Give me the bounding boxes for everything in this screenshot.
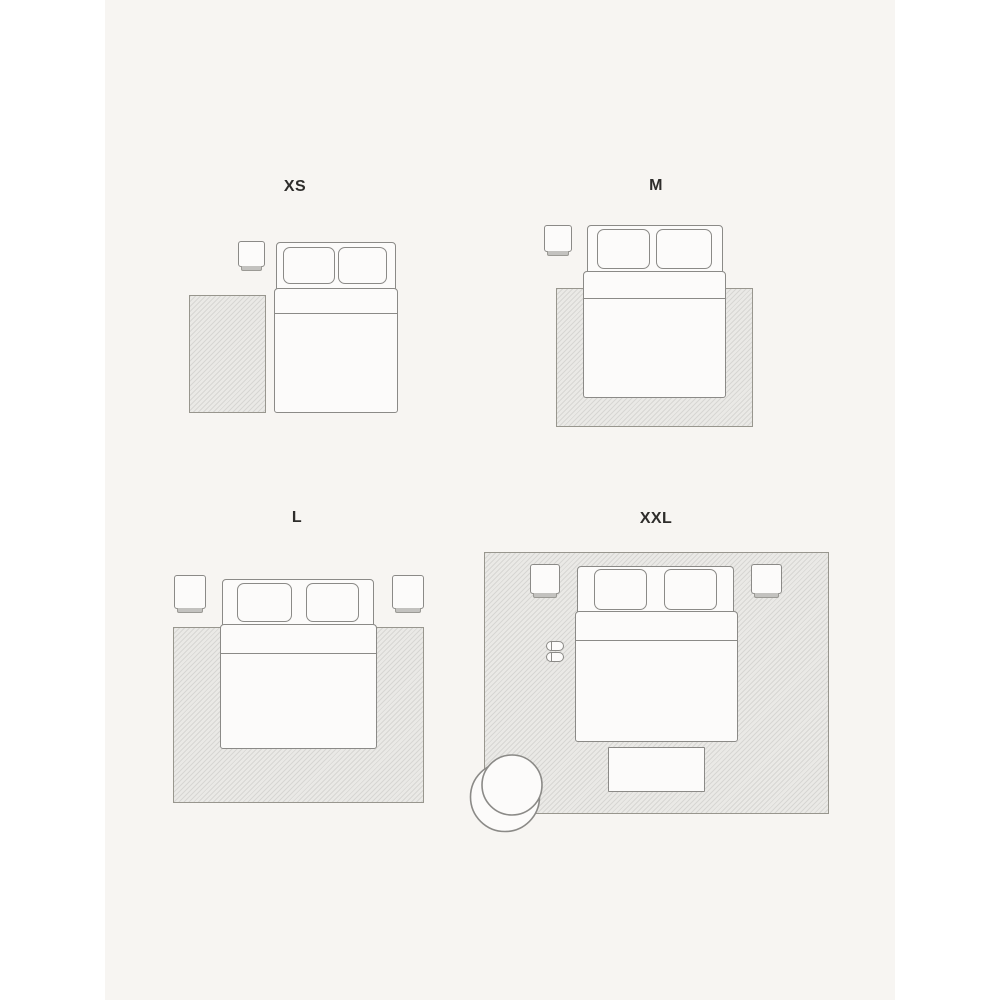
round-armchair xyxy=(465,748,547,836)
nightstand-base xyxy=(533,593,557,598)
bed-duvet xyxy=(575,611,738,742)
nightstand-right xyxy=(751,564,782,594)
scene-xxl: XXL xyxy=(0,0,1000,1000)
armchair-seat xyxy=(482,755,542,815)
duvet-fold-line xyxy=(576,640,737,641)
bed xyxy=(577,566,734,742)
pillow-right xyxy=(664,569,717,610)
size-label-xxl: XXL xyxy=(611,510,701,528)
nightstand-left xyxy=(530,564,560,594)
foot-bench xyxy=(608,747,705,792)
pillow-left xyxy=(594,569,647,610)
rug-size-guide-illustration: XS M L xyxy=(0,0,1000,1000)
slipper-icon xyxy=(546,641,564,651)
slipper-icon xyxy=(546,652,564,662)
nightstand-base xyxy=(754,593,779,598)
